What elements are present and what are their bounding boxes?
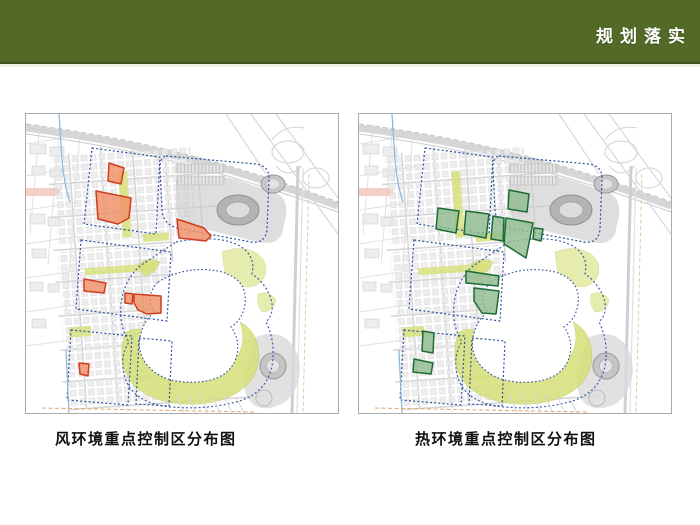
thermal-zone: [491, 216, 504, 241]
wind-zone: [79, 363, 89, 376]
thermal-zone: [422, 331, 434, 353]
wind-map-caption: 风环境重点控制区分布图: [55, 428, 237, 449]
map-panel-wind: [25, 113, 339, 414]
thermal-zone: [508, 190, 529, 212]
page-title: 规划落实: [596, 22, 692, 47]
map-panel-thermal: [358, 113, 672, 414]
thermal-zone: [436, 208, 459, 233]
thermal-zone: [464, 211, 489, 238]
thermal-zone: [533, 228, 543, 241]
wind-zone: [125, 293, 133, 304]
header-bar: 规划落实: [0, 0, 700, 64]
thermal-map-caption: 热环境重点控制区分布图: [415, 428, 597, 449]
thermal-map-image: [359, 114, 671, 413]
wind-map-image: [26, 114, 338, 413]
slide: 规划落实: [0, 0, 700, 525]
